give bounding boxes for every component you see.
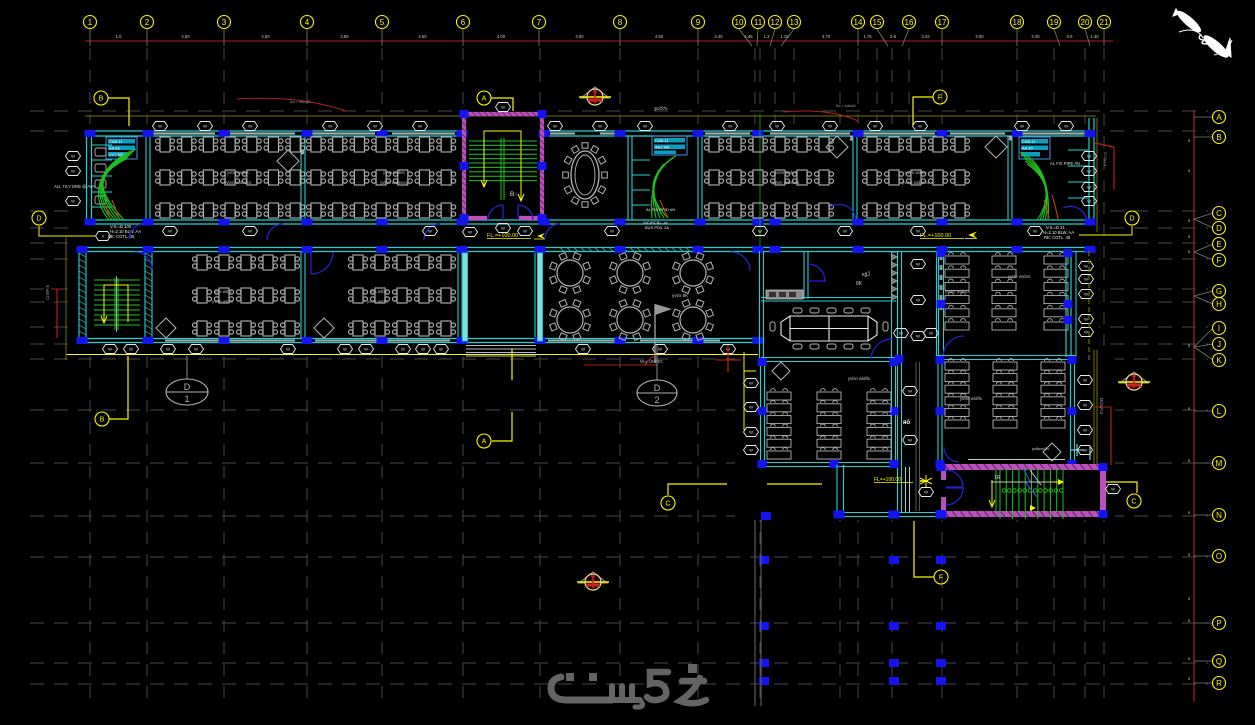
svg-text:CAB-11: CAB-11	[655, 138, 669, 143]
svg-text:W: W	[343, 347, 347, 352]
svg-text:W: W	[1084, 264, 1088, 269]
svg-text:W: W	[1084, 292, 1088, 297]
svg-text:CAB-11: CAB-11	[109, 139, 123, 144]
svg-text:12: 12	[771, 18, 780, 27]
svg-text:W: W	[129, 347, 133, 352]
svg-text:4.00: 4.00	[497, 34, 506, 39]
svg-text:W: W	[749, 405, 753, 410]
svg-text:AL FIX PIPE #N: AL FIX PIPE #N	[1050, 161, 1080, 166]
svg-text:9: 9	[696, 18, 701, 27]
svg-text:W: W	[924, 490, 928, 495]
svg-text:W: W	[168, 229, 172, 234]
svg-text:4.50: 4.50	[181, 34, 190, 39]
svg-text:3.40: 3.40	[714, 34, 723, 39]
svg-text:W: W	[328, 124, 332, 129]
svg-text:W: W	[501, 105, 505, 110]
svg-text:C: C	[1131, 499, 1136, 506]
svg-text:W: W	[1083, 428, 1087, 433]
svg-text:C: C	[665, 501, 670, 508]
svg-text:W: W	[899, 331, 903, 336]
svg-text:W: W	[71, 154, 75, 159]
svg-text:W: W	[1087, 169, 1091, 174]
svg-text:13: 13	[790, 18, 799, 27]
svg-text:DŪW<4: DŪW<4	[1103, 152, 1108, 167]
svg-text:8: 8	[618, 18, 623, 27]
svg-text:CAB-11: CAB-11	[1022, 139, 1036, 144]
svg-text:CnW<5: CnW<5	[45, 284, 50, 300]
svg-text:W: W	[1020, 124, 1024, 129]
svg-text:yv8sxv0h: yv8sxv0h	[1032, 446, 1049, 451]
svg-text:W: W	[166, 347, 170, 352]
svg-text:W: W	[439, 347, 443, 352]
svg-text:W: W	[775, 124, 779, 129]
svg-text:W: W	[71, 199, 75, 204]
svg-text:11: 11	[754, 18, 763, 27]
svg-text:N: N	[1216, 511, 1222, 520]
svg-text:RE: COTL. 45: RE: COTL. 45	[1044, 235, 1071, 240]
svg-text:W: W	[598, 124, 602, 129]
svg-text:yss wtby: yss wtby	[215, 289, 233, 294]
svg-text:ĸğĴ: ĸğĴ	[862, 270, 870, 278]
svg-text:W: W	[286, 347, 290, 352]
svg-text:4.50: 4.50	[418, 34, 427, 39]
svg-text:A: A	[482, 439, 487, 446]
svg-text:W: W	[658, 347, 662, 352]
svg-text:W: W	[418, 124, 422, 129]
svg-text:W: W	[610, 229, 614, 234]
svg-text:Bv,> kdfwD: Bv,> kdfwD	[836, 103, 856, 108]
svg-text:W: W	[929, 331, 933, 336]
svg-text:W,у ŪNMO: W,у ŪNMO	[640, 358, 663, 364]
svg-text:yvtm wides: yvtm wides	[775, 170, 798, 175]
svg-text:ŞcÖ7s: ŞcÖ7s	[654, 105, 668, 111]
svg-text:yvísn wídñs: yvísn wídñs	[848, 376, 870, 381]
svg-text:1.75: 1.75	[863, 34, 872, 39]
svg-text:DŪW<4: DŪW<4	[1099, 398, 1105, 414]
svg-text:1.15: 1.15	[780, 34, 789, 39]
svg-text:W: W	[843, 229, 847, 234]
svg-text:K: K	[1216, 356, 1222, 365]
svg-text:яŏ: яŏ	[903, 420, 911, 426]
svg-text:W: W	[749, 448, 753, 453]
svg-text:W: W	[916, 298, 920, 303]
svg-text:W: W	[373, 124, 377, 129]
svg-text:Av,> kBnvD: Av,> kBnvD	[290, 99, 311, 104]
svg-text:B: B	[100, 417, 105, 424]
svg-text:19: 19	[1050, 18, 1059, 27]
svg-text:AA 45: AA 45	[1022, 146, 1033, 151]
svg-text:W: W	[1083, 378, 1087, 383]
svg-text:yvten widsecs: yvten widsecs	[772, 180, 800, 185]
svg-text:F: F	[939, 575, 943, 582]
svg-text:4.50: 4.50	[655, 34, 664, 39]
svg-text:16: 16	[905, 18, 914, 27]
svg-text:1.45: 1.45	[744, 34, 753, 39]
svg-text:yvtra wtdm: yvtra wtdm	[212, 299, 234, 304]
svg-text:17: 17	[938, 18, 947, 27]
svg-text:A: A	[482, 96, 487, 103]
svg-text:yvtra wtdm: yvtra wtdm	[367, 299, 389, 304]
svg-text:B↑: B↑	[510, 191, 518, 198]
svg-text:yvtrs 8K: yvtrs 8K	[672, 293, 688, 298]
svg-text:W: W	[1111, 487, 1115, 492]
svg-text:3.40: 3.40	[1031, 34, 1040, 39]
svg-text:W: W	[918, 124, 922, 129]
svg-text:18: 18	[1013, 18, 1022, 27]
svg-text:M: M	[1216, 459, 1223, 468]
svg-text:W: W	[501, 226, 505, 231]
svg-text:W: W	[728, 124, 732, 129]
svg-text:1: 1	[184, 394, 189, 404]
svg-text:W: W	[158, 124, 162, 129]
svg-text:4: 4	[305, 18, 310, 27]
svg-text:F: F	[1217, 256, 1222, 265]
svg-text:W: W	[1084, 330, 1088, 335]
svg-text:W: W	[1033, 229, 1037, 234]
svg-text:I: I	[1218, 324, 1220, 333]
svg-text:RE: COTL. 45: RE: COTL. 45	[108, 234, 135, 239]
svg-text:W: W	[203, 124, 207, 129]
svg-text:W: W	[71, 169, 75, 174]
svg-text:W: W	[1064, 124, 1068, 129]
svg-text:H: H	[1216, 300, 1222, 309]
svg-text:W: W	[428, 229, 432, 234]
svg-text:BUS PD/L 2A: BUS PD/L 2A	[645, 225, 669, 230]
svg-text:W: W	[553, 124, 557, 129]
svg-text:R: R	[1216, 679, 1222, 688]
svg-text:yvísn wídñs: yvísn wídñs	[960, 396, 982, 401]
svg-text:G: G	[1216, 287, 1222, 296]
svg-text:W: W	[468, 230, 472, 235]
svg-text:1.3: 1.3	[764, 34, 770, 39]
svg-text:W: W	[523, 229, 527, 234]
svg-text:W: W	[908, 438, 912, 443]
svg-text:3.00: 3.00	[975, 34, 984, 39]
svg-text:W: W	[758, 229, 762, 234]
svg-text:W: W	[401, 347, 405, 352]
svg-text:D: D	[36, 216, 41, 223]
svg-text:yvtrh wtdns: yvtrh wtdns	[1008, 274, 1031, 279]
svg-text:AA 45: AA 45	[109, 146, 120, 151]
svg-text:E: E	[1216, 240, 1221, 249]
svg-text:3.85: 3.85	[340, 34, 349, 39]
svg-text:3-5: 3-5	[890, 34, 897, 39]
svg-text:4.00: 4.00	[575, 34, 584, 39]
svg-text:yss wtby: yss wtby	[370, 289, 388, 294]
svg-text:W: W	[828, 124, 832, 129]
svg-text:B: B	[1216, 133, 1221, 142]
svg-text:Q: Q	[1216, 657, 1222, 666]
svg-text:W: W	[749, 430, 753, 435]
svg-text:W: W	[1084, 317, 1088, 322]
svg-text:W: W	[916, 334, 920, 339]
svg-text:AA2 NB: AA2 NB	[655, 145, 670, 150]
svg-text:D: D	[184, 382, 191, 392]
svg-text:ALL TILY DRB @ AVA: ALL TILY DRB @ AVA	[54, 184, 95, 189]
svg-text:W: W	[248, 124, 252, 129]
svg-text:2: 2	[145, 18, 150, 27]
svg-text:yvten widsecs: yvten widsecs	[224, 180, 252, 185]
svg-text:D: D	[1129, 216, 1134, 223]
svg-text:1R: 1R	[994, 475, 1001, 481]
svg-text:D: D	[654, 383, 661, 393]
svg-text:yvtm wides: yvtm wides	[905, 170, 928, 175]
svg-text:W: W	[421, 347, 425, 352]
svg-text:C: C	[1216, 209, 1222, 218]
svg-text:3: 3	[222, 18, 227, 27]
svg-text:W: W	[1087, 199, 1091, 204]
svg-text:15: 15	[873, 18, 882, 27]
svg-text:W: W	[873, 124, 877, 129]
svg-text:1.40: 1.40	[1090, 34, 1099, 39]
svg-text:D: D	[1216, 224, 1222, 233]
svg-text:O: O	[1216, 552, 1222, 561]
svg-text:3: 3	[301, 150, 304, 156]
svg-text:W: W	[1084, 277, 1088, 282]
svg-text:4.50: 4.50	[261, 34, 270, 39]
svg-text:6: 6	[461, 18, 466, 27]
svg-text:1: 1	[88, 18, 93, 27]
svg-text:B: B	[99, 96, 104, 103]
svg-text:4.70: 4.70	[822, 34, 831, 39]
svg-text:L: L	[1217, 407, 1222, 416]
svg-text:2: 2	[850, 136, 853, 142]
svg-text:W: W	[908, 389, 912, 394]
svg-text:W: W	[364, 347, 368, 352]
svg-text:W: W	[1087, 185, 1091, 190]
svg-text:W: W	[916, 262, 920, 267]
svg-text:P: P	[1216, 619, 1221, 628]
svg-text:20: 20	[1081, 18, 1090, 27]
svg-text:J: J	[1217, 340, 1221, 349]
svg-text:1.0: 1.0	[116, 34, 122, 39]
svg-text:5: 5	[380, 18, 385, 27]
svg-text:AL PIX PPID #N: AL PIX PPID #N	[646, 207, 675, 212]
svg-text:3: 3	[1009, 136, 1012, 142]
svg-text:7: 7	[537, 18, 542, 27]
svg-text:21: 21	[1100, 18, 1109, 27]
svg-text:W: W	[248, 229, 252, 234]
svg-text:14: 14	[854, 18, 863, 27]
svg-text:W: W	[749, 381, 753, 386]
svg-text:W: W	[108, 347, 112, 352]
svg-text:yvten widsecs: yvten widsecs	[380, 180, 408, 185]
svg-text:yvten widsecs: yvten widsecs	[902, 180, 930, 185]
svg-text:W: W	[1087, 154, 1091, 159]
svg-text:W: W	[1083, 403, 1087, 408]
svg-text:V: V	[102, 234, 105, 239]
svg-text:W: W	[643, 124, 647, 129]
svg-text:A: A	[1216, 113, 1222, 122]
svg-text:yvtm wides: yvtm wides	[227, 170, 250, 175]
svg-text:F: F	[938, 95, 942, 102]
svg-text:yvtm wides: yvtm wides	[383, 170, 406, 175]
svg-text:3.43: 3.43	[921, 34, 930, 39]
svg-text:8K: 8K	[856, 281, 863, 287]
svg-text:10: 10	[735, 18, 744, 27]
svg-text:W: W	[581, 347, 585, 352]
svg-text:2: 2	[654, 395, 659, 405]
svg-text:0.9: 0.9	[1067, 34, 1073, 39]
svg-text:W: W	[194, 347, 198, 352]
